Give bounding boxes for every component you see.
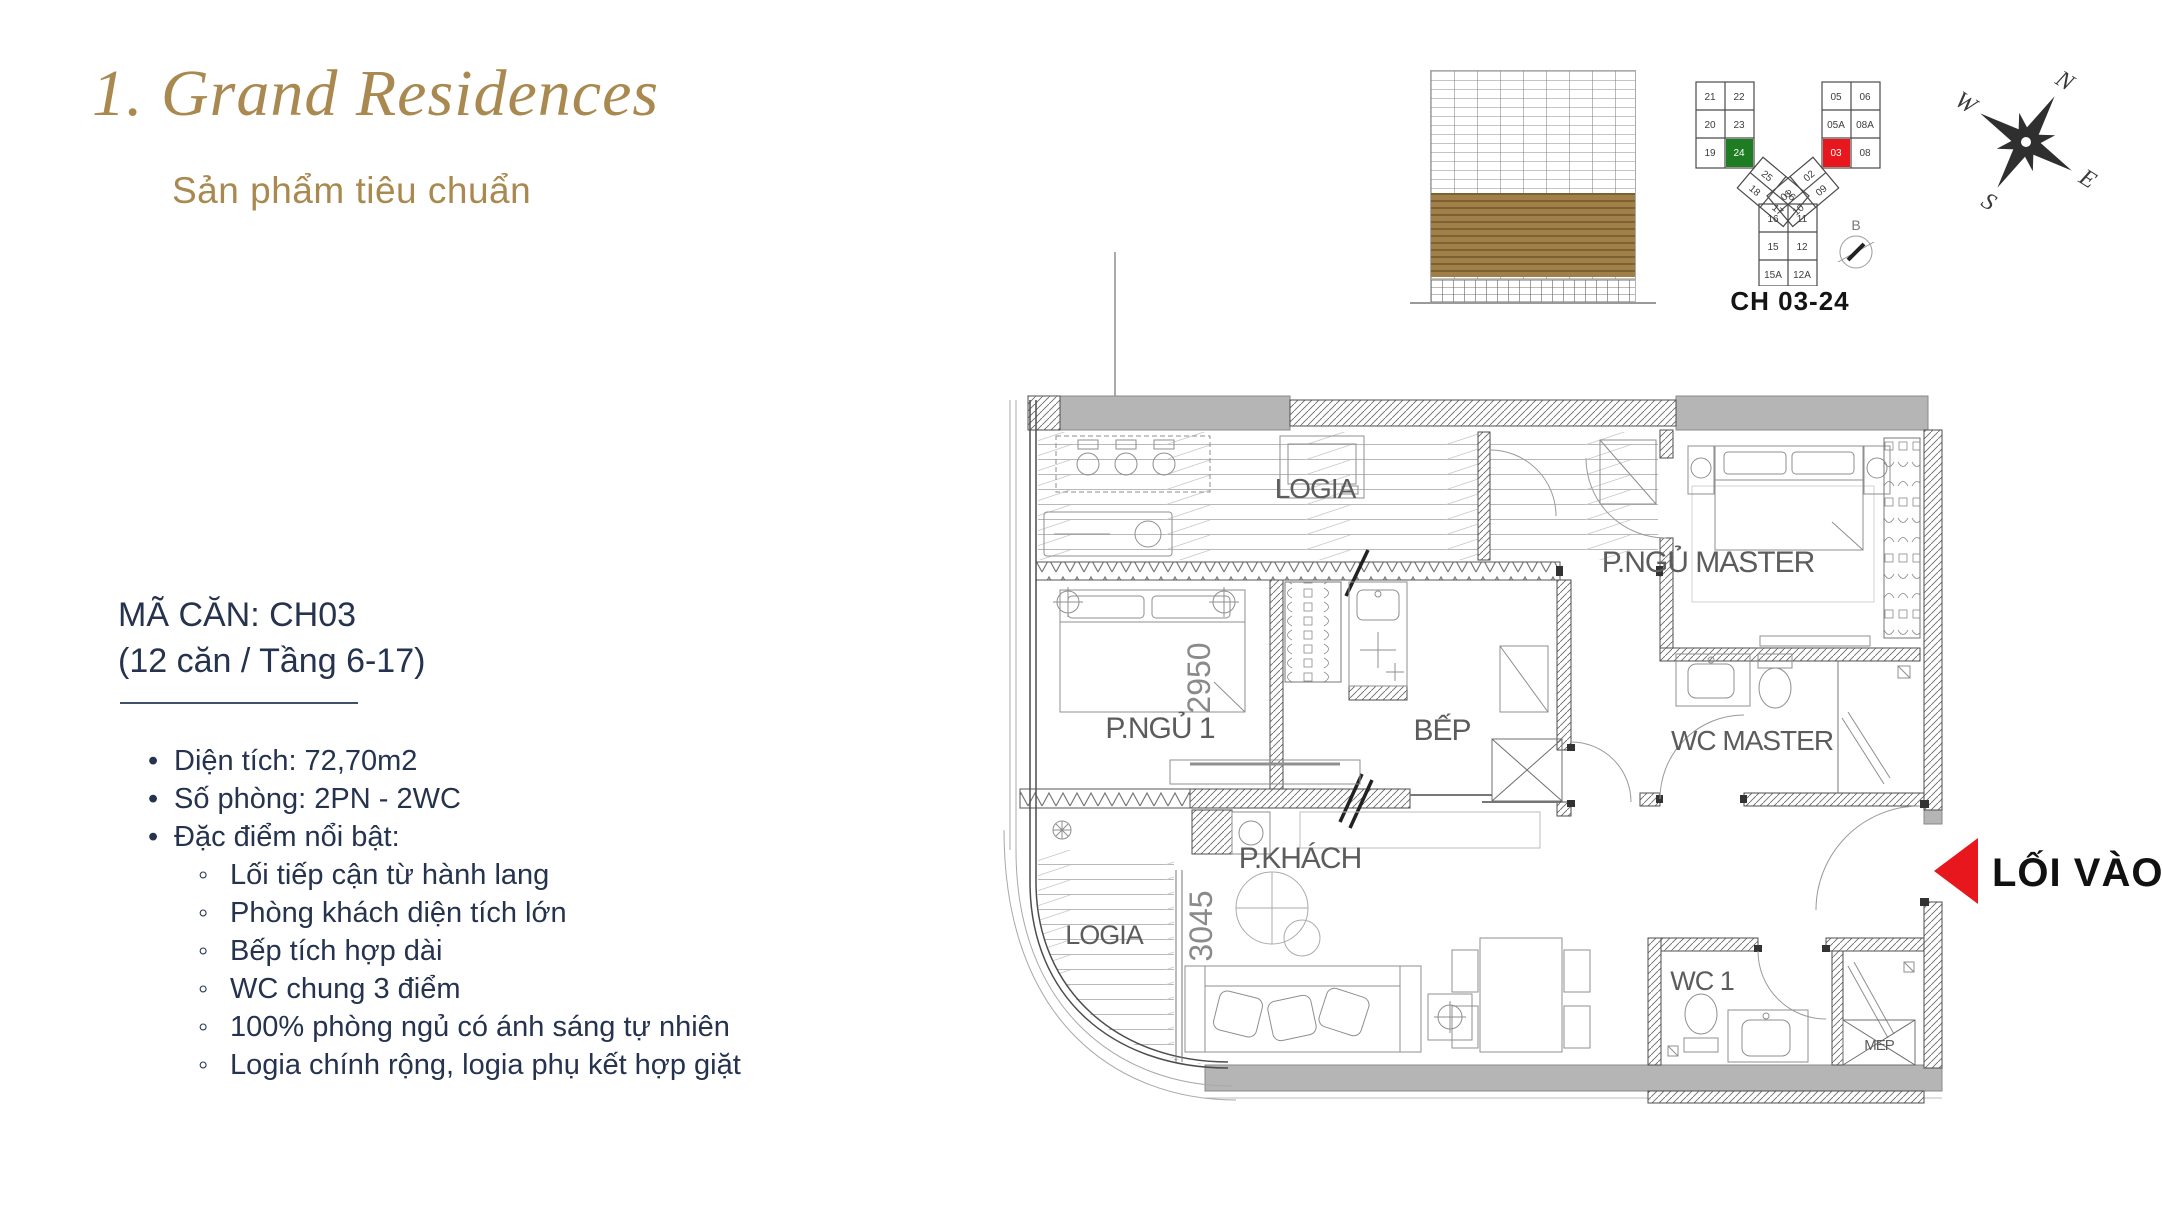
logia-glass-wall [1176,870,1182,1062]
feature-text: Đặc điểm nổi bật: [174,821,400,853]
svg-text:09: 09 [1814,183,1830,199]
detail-item: 100% phòng ngủ có ánh sáng tự nhiên [140,1008,741,1046]
svg-text:N: N [2050,65,2080,97]
dining-set [1452,938,1590,1052]
detail-text: Phòng khách diện tích lớn [230,897,567,929]
unit-code: MÃ CĂN: CH03 [118,596,356,635]
floor-plan: LOGIA P.NGỦ MASTER P.NGỦ 1 BẾP WC MASTER… [1000,250,2162,1130]
detail-text: Bếp tích hợp dài [230,935,443,967]
svg-text:05: 05 [1830,92,1842,103]
svg-text:W: W [1950,87,1982,121]
svg-text:E: E [2074,164,2101,195]
nightstand [1688,446,1890,494]
room-label-bedroom1: P.NGỦ 1 [1105,711,1214,745]
detail-text: WC chung 3 điểm [230,973,461,1005]
divider-line [120,702,358,704]
wc-master-fixtures [1676,654,1910,793]
svg-text:05A: 05A [1827,120,1845,131]
svg-text:08: 08 [1859,148,1871,159]
laundry-point [1053,812,1270,854]
dimension-2950: 2950 [1181,642,1217,713]
downlight [1053,587,1239,617]
detail-item: Lối tiếp cận từ hành lang [140,856,741,894]
entry-label: LỐI VÀO [1992,849,2162,895]
svg-text:22: 22 [1733,92,1745,103]
bed-master [1715,446,1863,550]
svg-text:06: 06 [1859,92,1871,103]
feature-item: Diện tích: 72,70m2 [140,742,741,780]
room-label-logia-top: LOGIA [1275,473,1357,504]
brochure-page: { "header": { "title": "1. Grand Residen… [0,0,2162,1207]
svg-text:03: 03 [1830,148,1842,159]
detail-item: WC chung 3 điểm [140,970,741,1008]
svg-text:19: 19 [1704,148,1716,159]
rug [1692,486,1874,602]
side-table [1428,994,1472,1040]
svg-text:11: 11 [1797,214,1808,225]
detail-item: Bếp tích hợp dài [140,932,741,970]
svg-text:08A: 08A [1856,120,1874,131]
feature-text: Diện tích: 72,70m2 [174,745,417,777]
tv-console-1 [1170,760,1360,784]
wardrobe-shelves [1285,582,1341,682]
fridge [1500,646,1548,712]
detail-text: Logia chính rộng, logia phụ kết hợp giặt [230,1049,741,1081]
svg-text:23: 23 [1733,120,1745,131]
door-posts [1556,566,1929,952]
feature-item: Đặc điểm nổi bật: [140,818,741,856]
svg-text:20: 20 [1704,120,1716,131]
page-subtitle: Sản phẩm tiêu chuẩn [172,170,531,212]
unit-availability: (12 căn / Tầng 6-17) [118,642,425,681]
wardrobe-master [1884,438,1920,638]
compass-rose-icon: N E S W [1948,42,2112,242]
svg-text:18: 18 [1746,183,1762,199]
room-label-wc1: WC 1 [1670,966,1734,996]
kitchen-counter [1349,582,1407,686]
detail-text: 100% phòng ngủ có ánh sáng tự nhiên [230,1011,730,1043]
feature-text: Số phòng: 2PN - 2WC [174,783,461,815]
shaft-box [1492,739,1562,801]
room-label-mep: MEP [1864,1037,1895,1054]
page-title: 1. Grand Residences [92,56,659,132]
room-label-living: P.KHÁCH [1239,842,1362,875]
detail-text: Lối tiếp cận từ hành lang [230,859,549,891]
dresser [1760,636,1870,646]
feature-item: Số phòng: 2PN - 2WC [140,780,741,818]
room-label-kitchen: BẾP [1413,713,1470,747]
room-label-wc-master: WC MASTER [1671,725,1833,756]
entry-arrow-icon [1934,838,1978,904]
bed-1 [1060,590,1245,712]
feature-list: Diện tích: 72,70m2 Số phòng: 2PN - 2WC Đ… [140,742,741,1084]
room-label-master: P.NGỦ MASTER [1602,545,1815,579]
svg-text:21: 21 [1704,92,1716,103]
dimension-3045: 3045 [1183,890,1219,961]
detail-item: Logia chính rộng, logia phụ kết hợp giặt [140,1046,741,1084]
svg-text:S: S [1977,188,2001,216]
svg-text:B: B [1851,217,1860,233]
room-label-logia-bottom: LOGIA [1065,920,1144,950]
svg-text:16: 16 [1767,214,1779,225]
ceiling-fan [1236,872,1320,956]
detail-item: Phòng khách diện tích lớn [140,894,741,932]
tower-facade [1430,70,1636,280]
svg-text:24: 24 [1733,148,1745,159]
sofa [1185,966,1421,1052]
